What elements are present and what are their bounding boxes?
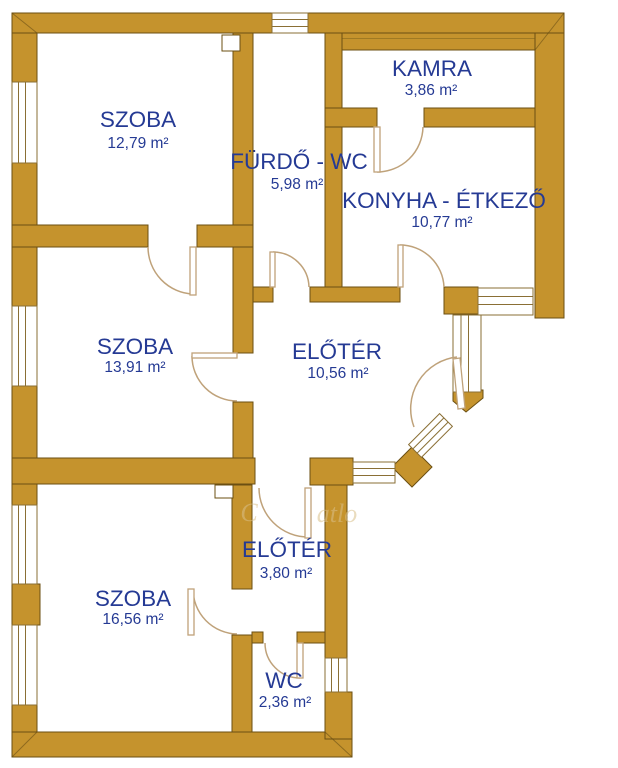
door-icon xyxy=(270,252,309,287)
door-swing-arc xyxy=(411,357,457,427)
window-icon xyxy=(272,13,308,33)
wall-segment xyxy=(232,635,252,732)
watermark-fragment: C xyxy=(240,498,258,527)
door-icon xyxy=(374,127,423,172)
wall-segment xyxy=(444,287,478,314)
door-leaf xyxy=(270,252,275,287)
wall-segment xyxy=(253,287,273,302)
door-icon xyxy=(148,247,196,295)
floor-plan: SZOBA 12,79 m² KAMRA 3,86 m² FÜRDŐ - WC … xyxy=(0,0,618,768)
window-frame xyxy=(353,462,395,483)
window-frame xyxy=(272,13,308,33)
window-frame xyxy=(12,505,37,584)
wall-segment xyxy=(233,402,253,458)
window-frame xyxy=(409,414,453,458)
wall-segment xyxy=(297,632,325,643)
room-area-szoba-2: 13,91 m² xyxy=(104,359,165,376)
room-name-konyha-etkezo: KONYHA - ÉTKEZŐ xyxy=(342,188,546,213)
wall-segment xyxy=(12,225,148,247)
wall-segment xyxy=(233,33,253,225)
wall-segment xyxy=(310,458,353,485)
window-frame xyxy=(12,625,37,705)
window-icon xyxy=(353,462,395,483)
door-swing-arc xyxy=(193,589,237,634)
window-icon xyxy=(409,414,453,458)
door-icon xyxy=(192,353,237,401)
room-area-furdo-wc: 5,98 m² xyxy=(271,176,324,193)
room-area-eloter-1: 10,56 m² xyxy=(307,365,368,382)
wall-segment xyxy=(12,33,37,82)
wall-segment xyxy=(12,584,40,625)
room-name-eloter-1: ELŐTÉR xyxy=(292,339,382,364)
door-leaf xyxy=(188,589,194,635)
wall-segment xyxy=(325,108,377,127)
room-name-furdo-wc: FÜRDŐ - WC xyxy=(230,149,367,174)
wall-segment xyxy=(12,458,255,484)
floor-plan-drawing: SZOBA 12,79 m² KAMRA 3,86 m² FÜRDŐ - WC … xyxy=(0,0,618,768)
room-area-wc: 2,36 m² xyxy=(259,694,312,711)
room-area-eloter-2: 3,80 m² xyxy=(260,565,313,582)
flue-notch xyxy=(222,35,240,51)
window-icon xyxy=(12,82,37,163)
door-leaf xyxy=(398,245,403,287)
wall-segment xyxy=(308,13,564,33)
door-swing-arc xyxy=(192,356,237,401)
room-name-szoba-2: SZOBA xyxy=(97,334,173,359)
door-leaf xyxy=(305,488,311,538)
door-swing-arc xyxy=(148,247,193,294)
room-name-eloter-2: ELŐTÉR xyxy=(242,537,332,562)
wall-segment xyxy=(233,247,253,353)
window-icon xyxy=(12,505,37,584)
room-area-szoba-3: 16,56 m² xyxy=(102,611,163,628)
door-leaf xyxy=(374,127,380,172)
room-name-szoba-3: SZOBA xyxy=(95,586,171,611)
room-area-szoba-1: 12,79 m² xyxy=(107,135,168,152)
window-icon xyxy=(478,288,533,315)
room-area-konyha-etkezo: 10,77 m² xyxy=(411,214,472,231)
room-name-kamra: KAMRA xyxy=(392,56,472,81)
wall-segment xyxy=(325,692,352,739)
window-icon xyxy=(12,306,37,386)
watermark-fragment: atlo xyxy=(317,499,357,528)
window-icon xyxy=(325,658,347,692)
door-swing-arc xyxy=(400,245,444,287)
window-frame xyxy=(478,288,533,315)
door-icon xyxy=(259,488,311,538)
wall-segment xyxy=(535,33,564,318)
window-frame xyxy=(12,306,37,386)
window-icon xyxy=(12,625,37,705)
wall-segment xyxy=(310,287,400,302)
wall-segment xyxy=(12,732,352,757)
window-frame xyxy=(325,658,347,692)
door-leaf xyxy=(190,247,196,295)
room-area-kamra: 3,86 m² xyxy=(405,82,458,99)
room-name-wc: WC xyxy=(265,668,303,693)
door-icon xyxy=(398,245,444,287)
door-leaf xyxy=(192,353,237,358)
door-swing-arc xyxy=(259,488,308,537)
watermark: C atlo xyxy=(240,498,357,528)
wall-segment xyxy=(325,33,535,50)
door-swing-arc xyxy=(273,252,309,287)
wall-segment xyxy=(12,13,272,33)
wall-segment xyxy=(252,632,263,643)
wall-notch xyxy=(215,485,233,498)
window-frame xyxy=(12,82,37,163)
wall-segment xyxy=(197,225,253,247)
wall-segment xyxy=(12,386,37,505)
door-icon xyxy=(188,589,237,635)
door-swing-arc xyxy=(377,127,423,172)
room-name-szoba-1: SZOBA xyxy=(100,107,176,132)
wall-segment xyxy=(424,108,535,127)
